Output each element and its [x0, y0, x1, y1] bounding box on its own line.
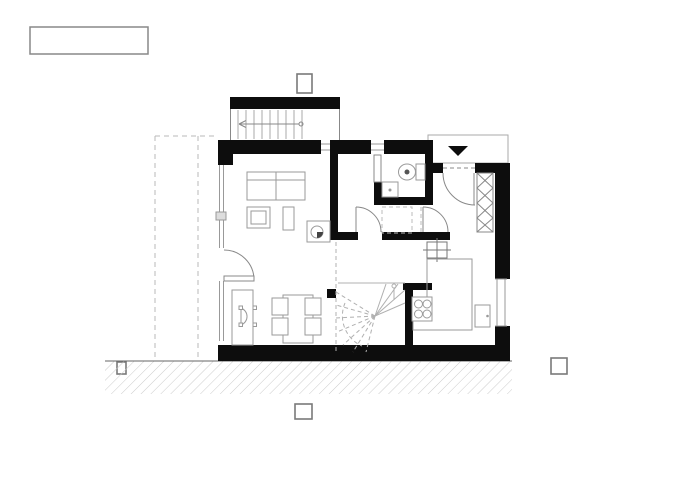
porch-wall [230, 97, 340, 109]
wall-hall-west [330, 154, 338, 232]
roof-overhang-dashed [155, 136, 218, 358]
dining-chair [305, 318, 321, 335]
door-hall-entry [423, 207, 448, 232]
structural-column [327, 289, 336, 298]
dining-chair [272, 298, 288, 315]
wardrobe-zigzag [477, 173, 493, 232]
washbasin [382, 182, 398, 197]
title-block [30, 27, 148, 54]
dining-chair [305, 298, 321, 315]
door-wc [374, 155, 381, 182]
coffee-table [283, 207, 294, 230]
wall-entry-top-left [425, 163, 443, 173]
wall-top-left-stub [218, 154, 233, 165]
floor-plan-drawing [0, 0, 700, 495]
wall-entry-top-right [475, 163, 510, 173]
window-right [495, 279, 507, 326]
window-left-facade [216, 165, 226, 341]
ground-hatch [105, 361, 512, 394]
wall-hall-south-b [382, 232, 450, 240]
step-direction-arrow [239, 121, 303, 128]
door-hall-living [356, 207, 381, 232]
wall-hall-south-a [330, 232, 358, 240]
wall-right-upper [495, 173, 510, 279]
wall-bottom [218, 345, 510, 361]
kitchen-hob [412, 297, 432, 321]
winder-staircase [336, 242, 405, 352]
door-terrace [224, 250, 254, 281]
entry-porch [230, 97, 340, 140]
hall-dashed-clearance [382, 207, 412, 233]
marker-bottom [295, 404, 312, 419]
toilet [399, 164, 426, 180]
marker-right [551, 358, 567, 374]
armchair [247, 207, 270, 228]
window-mullion [216, 212, 226, 220]
entrance-canopy [428, 135, 508, 163]
wall-wc-south [374, 197, 433, 205]
living-room-furniture [247, 172, 330, 242]
door-entrance [443, 168, 475, 205]
sofa [247, 172, 305, 200]
dining-furniture [232, 290, 321, 345]
wood-stove [307, 221, 330, 242]
floor-plan-canvas [0, 0, 700, 495]
marker-top [297, 74, 312, 93]
refrigerator [475, 305, 490, 327]
dining-chair [272, 318, 288, 335]
crosshair-point [423, 238, 451, 262]
wc-fixtures [382, 164, 425, 197]
